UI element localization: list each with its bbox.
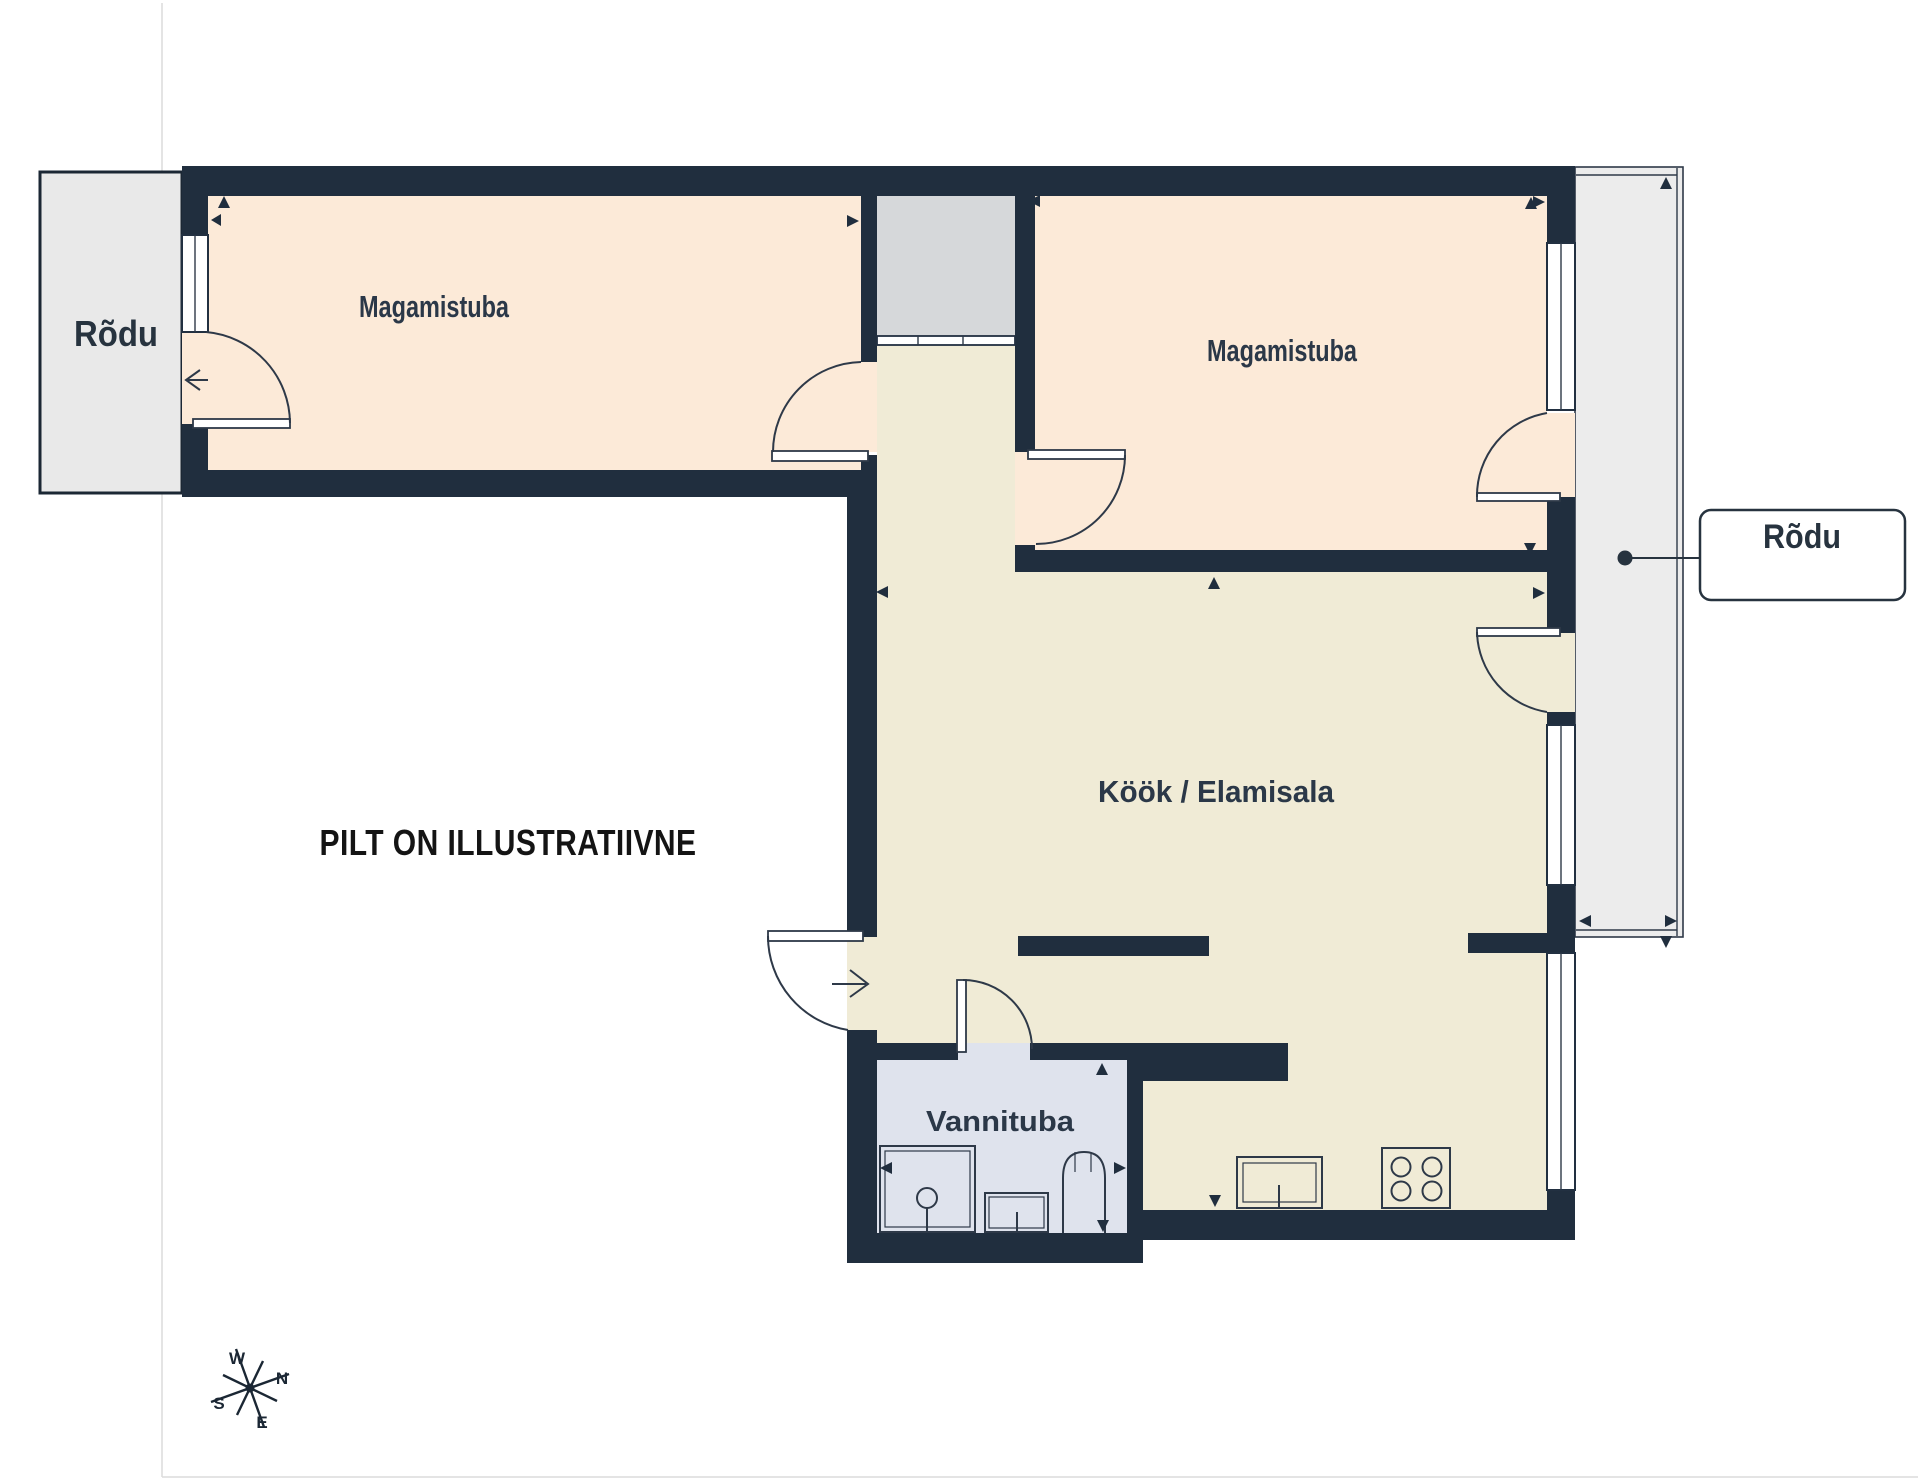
wall-hall-left [847,497,877,937]
compass-center-dot [246,1384,255,1393]
compass-north: N [276,1369,288,1388]
door-leaf-kitchen-balcony [1477,628,1560,636]
door-leaf-bedroom2-balcony [1477,493,1560,501]
floor-plan-drawing: Magamistuba Magamistuba Köök / Elamisala… [0,0,1920,1483]
threshold-bedroom1-balcony [182,332,208,424]
wall-bedroom1-bottom [182,470,877,497]
disclaimer-text: PILT ON ILLUSTRATIIVNE [320,822,697,863]
threshold-bedroom2-door [1015,452,1035,545]
wall-top [182,166,1575,196]
threshold-bathroom-door [958,1043,1030,1062]
wall-kitchen-bottom [1143,1210,1575,1240]
compass-west: W [229,1349,246,1368]
room-label-balcony-right: Rõdu [1763,518,1841,556]
room-label-bedroom-2: Magamistuba [1207,333,1358,368]
compass-south: S [213,1394,224,1413]
door-leaf-bedroom1-balcony [193,419,290,428]
wall-right-5 [1547,1190,1575,1240]
room-label-kitchen-living: Köök / Elamisala [1098,774,1335,809]
floor-plan-page: Magamistuba Magamistuba Köök / Elamisala… [0,0,1920,1483]
door-leaf-bedroom1 [772,451,868,461]
wall-bedroom2-left-upper [1015,196,1035,452]
compass-east: E [256,1413,267,1432]
wall-bath-right [1127,1043,1143,1240]
wall-right-3 [1547,712,1575,725]
wall-bath-top-left [877,1043,958,1060]
closet-front-bar [877,336,1015,345]
wall-kitchen-island-left [1018,936,1209,956]
wall-kitchen-island-right [1468,933,1547,953]
threshold-kitchen-balcony [1547,633,1575,712]
dim-arrow [1660,936,1672,948]
wall-bedroom1-right-upper [861,196,877,362]
wall-right-1 [1547,196,1575,243]
wall-bedroom2-bottom [1015,550,1575,572]
wall-bath-bottom [847,1233,1143,1263]
wall-left-upper [182,196,208,235]
wall-hall-stub [1143,1043,1288,1081]
wall-left-lower [182,424,208,470]
door-leaf-entrance [768,931,863,941]
shaft-floor [877,196,1015,345]
threshold-bedroom2-balcony [1547,413,1575,497]
room-label-bedroom-1: Magamistuba [359,289,510,324]
bedroom-1-floor [208,196,861,470]
bedroom-2-floor [1035,196,1547,550]
callout-dot [1618,551,1633,566]
wall-bath-top-right [1030,1043,1143,1060]
room-label-balcony-left: Rõdu [74,313,158,354]
door-leaf-bathroom [957,980,966,1052]
room-label-bathroom: Vannituba [926,1106,1075,1138]
door-leaf-bedroom2 [1028,450,1125,459]
wall-right-4 [1547,885,1575,953]
threshold-bedroom1-door [861,362,877,452]
wall-bath-left [847,1030,877,1263]
compass-icon: W N S E [211,1349,289,1432]
